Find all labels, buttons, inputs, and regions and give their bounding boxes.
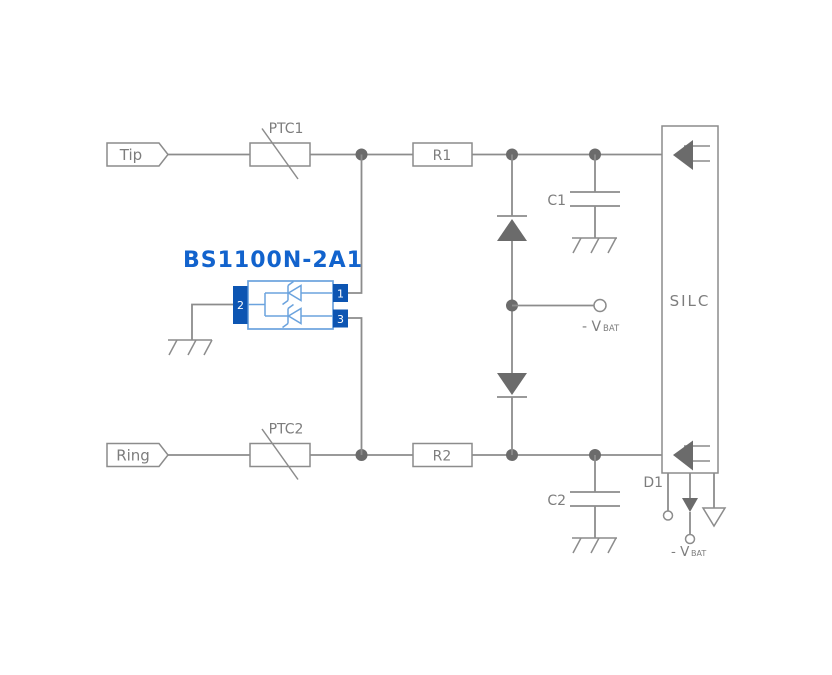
vbat-bottom-terminal xyxy=(686,535,695,544)
vbat-mid-terminal xyxy=(594,300,606,312)
ptc1-label: PTC1 xyxy=(269,121,304,137)
c1-label: C1 xyxy=(547,193,566,209)
protector-title: BS1100N-2A1 xyxy=(183,248,363,273)
silc-block: SILC D1 - V BAT xyxy=(643,126,725,560)
earth-ground-icon xyxy=(703,508,725,526)
c1-ground-icon xyxy=(572,238,617,253)
r2-label: R2 xyxy=(433,449,452,465)
ring-line: Ring PTC2 R2 xyxy=(107,422,662,480)
tip-line: Tip PTC1 R1 xyxy=(107,121,662,179)
protector-bs1100n: BS1100N-2A1 xyxy=(168,155,363,456)
silc-label: SILC xyxy=(670,292,711,310)
vbat-arrow-icon xyxy=(682,498,698,512)
diode-up-symbol xyxy=(497,219,527,241)
c2-label: C2 xyxy=(547,493,566,509)
ring-label: Ring xyxy=(116,447,150,465)
c2-ground-icon xyxy=(572,538,617,553)
vbat-mid-label-sub: BAT xyxy=(603,324,620,334)
c1-branch: C1 xyxy=(547,155,620,254)
c2-branch: C2 xyxy=(547,455,620,553)
vbat-bottom-label: - V xyxy=(671,544,690,560)
wire-pin3-to-ring xyxy=(348,318,362,455)
r1-label: R1 xyxy=(433,148,452,164)
schematic-canvas: Tip PTC1 R1 Ring PTC2 R2 xyxy=(0,0,832,675)
ptc2-label: PTC2 xyxy=(269,422,304,438)
pin2-number: 2 xyxy=(237,299,244,312)
pin2-ground-icon xyxy=(168,340,212,355)
pin1-number: 1 xyxy=(337,288,344,301)
vbat-mid-label: - V xyxy=(582,319,602,335)
silc-bottom-pins: D1 - V BAT xyxy=(643,473,725,560)
wire-pin2-to-ground xyxy=(192,305,233,341)
diode-down-symbol xyxy=(497,373,527,395)
circuit-schematic: Tip PTC1 R1 Ring PTC2 R2 xyxy=(0,0,832,675)
vbat-bottom-label-sub: BAT xyxy=(691,549,706,558)
d1-terminal xyxy=(664,511,673,520)
d1-label: D1 xyxy=(643,475,663,491)
tip-label: Tip xyxy=(119,146,142,164)
pin3-number: 3 xyxy=(337,313,344,326)
